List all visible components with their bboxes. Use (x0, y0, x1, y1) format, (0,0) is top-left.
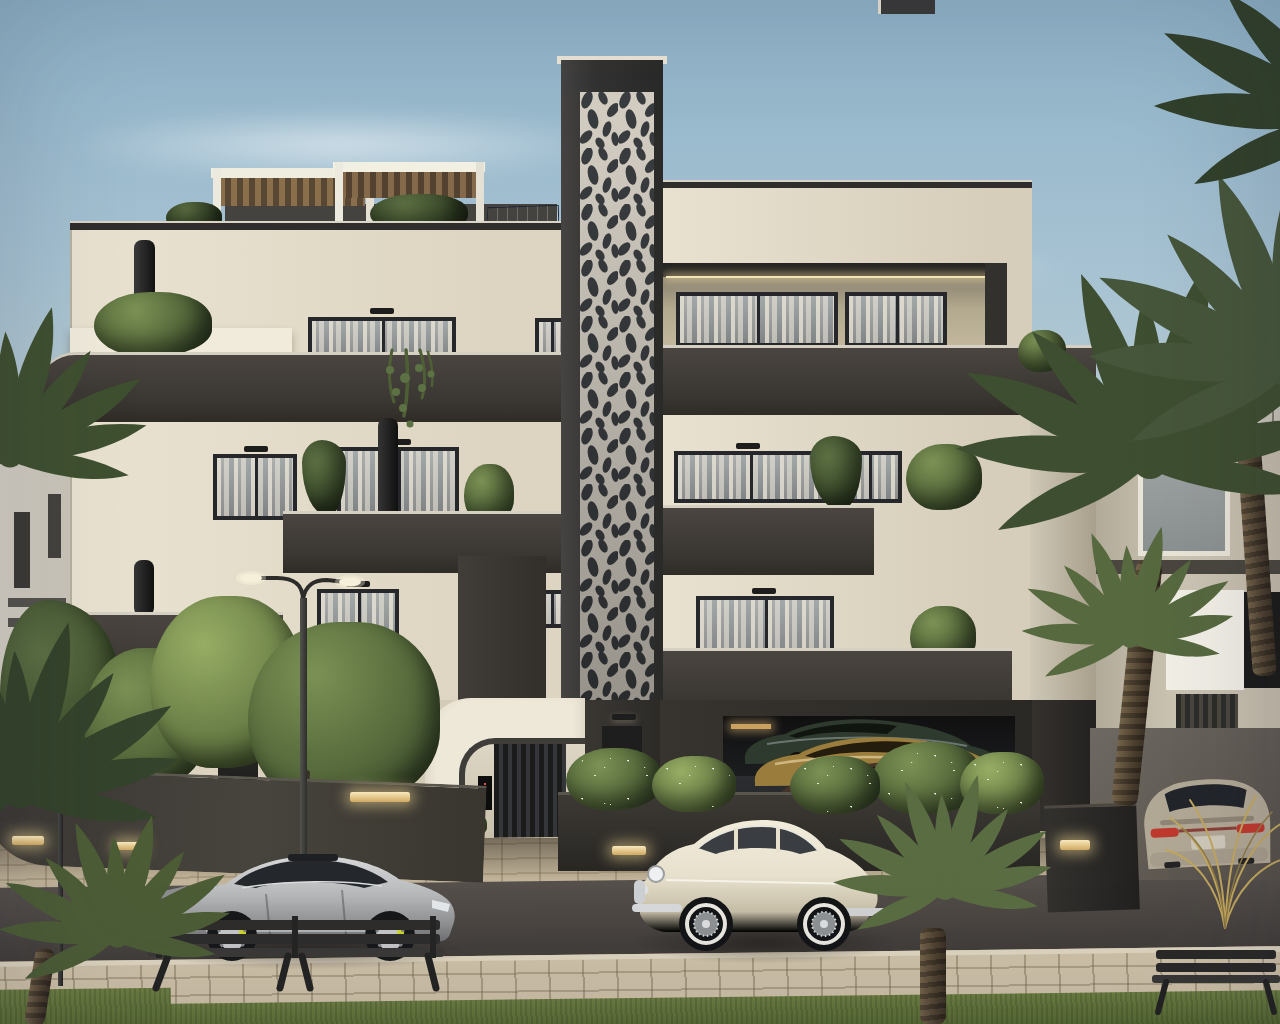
wire-wheel (679, 897, 733, 951)
palm-small-right (990, 520, 1270, 735)
chrome-grille (634, 880, 645, 904)
wall-light (612, 714, 636, 720)
foreground-palm-crown (800, 768, 1090, 990)
wall-light (736, 443, 760, 449)
wall-light (370, 308, 394, 314)
pergola-beam (333, 162, 485, 172)
window-f2-b (337, 447, 459, 515)
glass-roof (288, 854, 338, 861)
pergola-post (476, 162, 484, 226)
window-f2-right-a (674, 451, 826, 503)
palm-crown-top-right (1100, 0, 1280, 285)
round-column (378, 418, 398, 520)
balcony-parapet-right-f2 (663, 505, 874, 575)
pergola-post (335, 162, 343, 226)
dry-grass-tuft (1160, 788, 1280, 930)
window-top-right-a (676, 292, 838, 347)
dark-facade-panel (458, 556, 546, 714)
palm-crown-top-left (0, 298, 195, 583)
street-lamp-arms (233, 566, 369, 602)
stair-bulkhead (878, 0, 935, 14)
perforated-ornamental-panel (580, 92, 654, 724)
wall-light (244, 446, 268, 452)
chrome-bumper (632, 904, 682, 912)
recessed-wall-light (350, 792, 410, 802)
bench-right (1152, 944, 1280, 1016)
wall-light (752, 588, 776, 594)
palm-crown-bottom-left (0, 808, 270, 1024)
planter-shrub (652, 756, 736, 812)
headlight (648, 866, 664, 882)
planter-shrub (566, 748, 662, 810)
architectural-render-scene (0, 0, 1280, 1024)
